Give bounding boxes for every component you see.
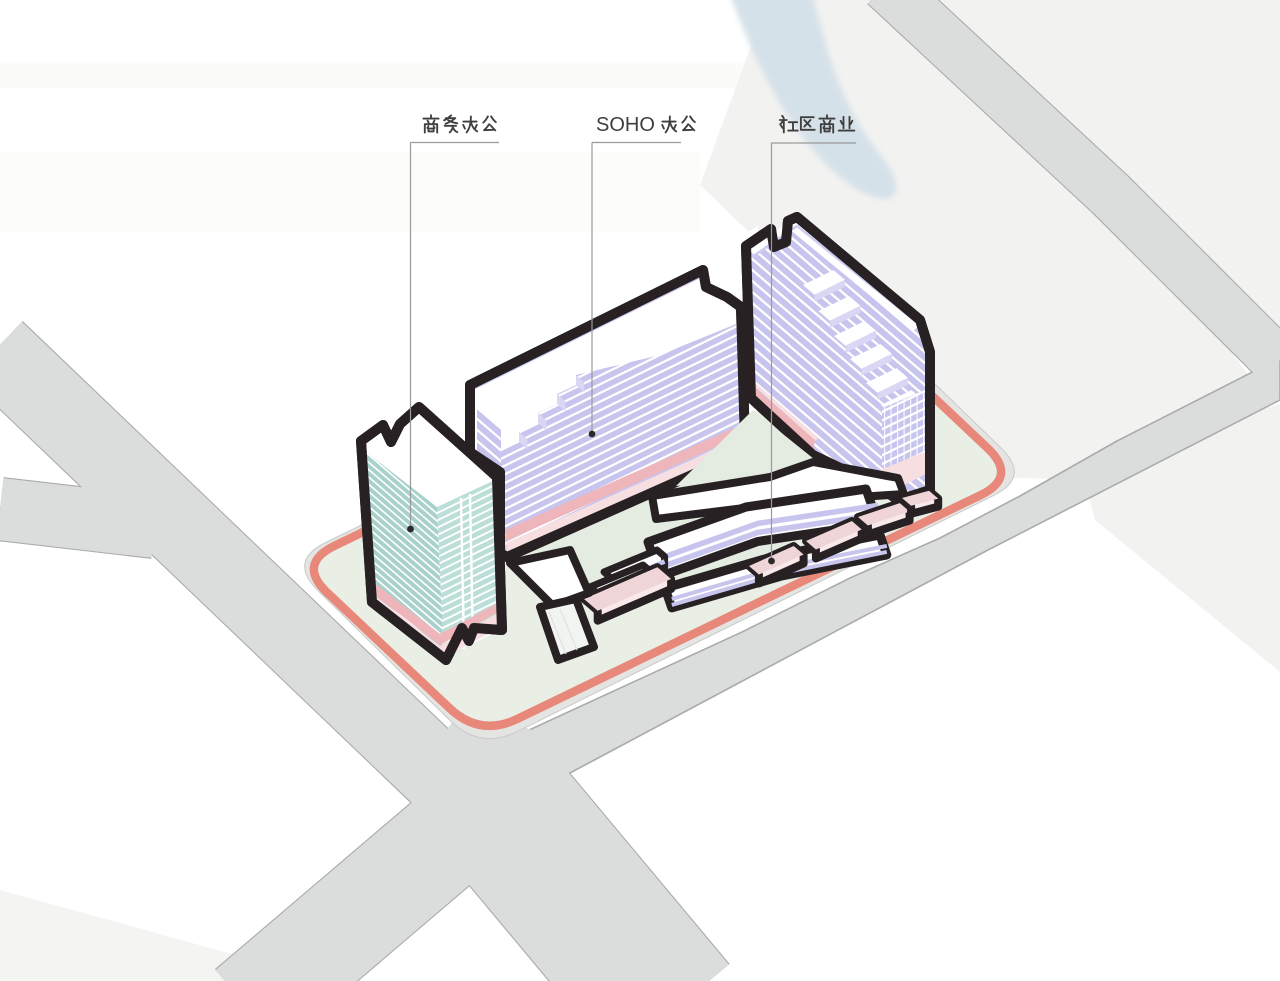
svg-text:SOHO: SOHO [596, 114, 655, 136]
